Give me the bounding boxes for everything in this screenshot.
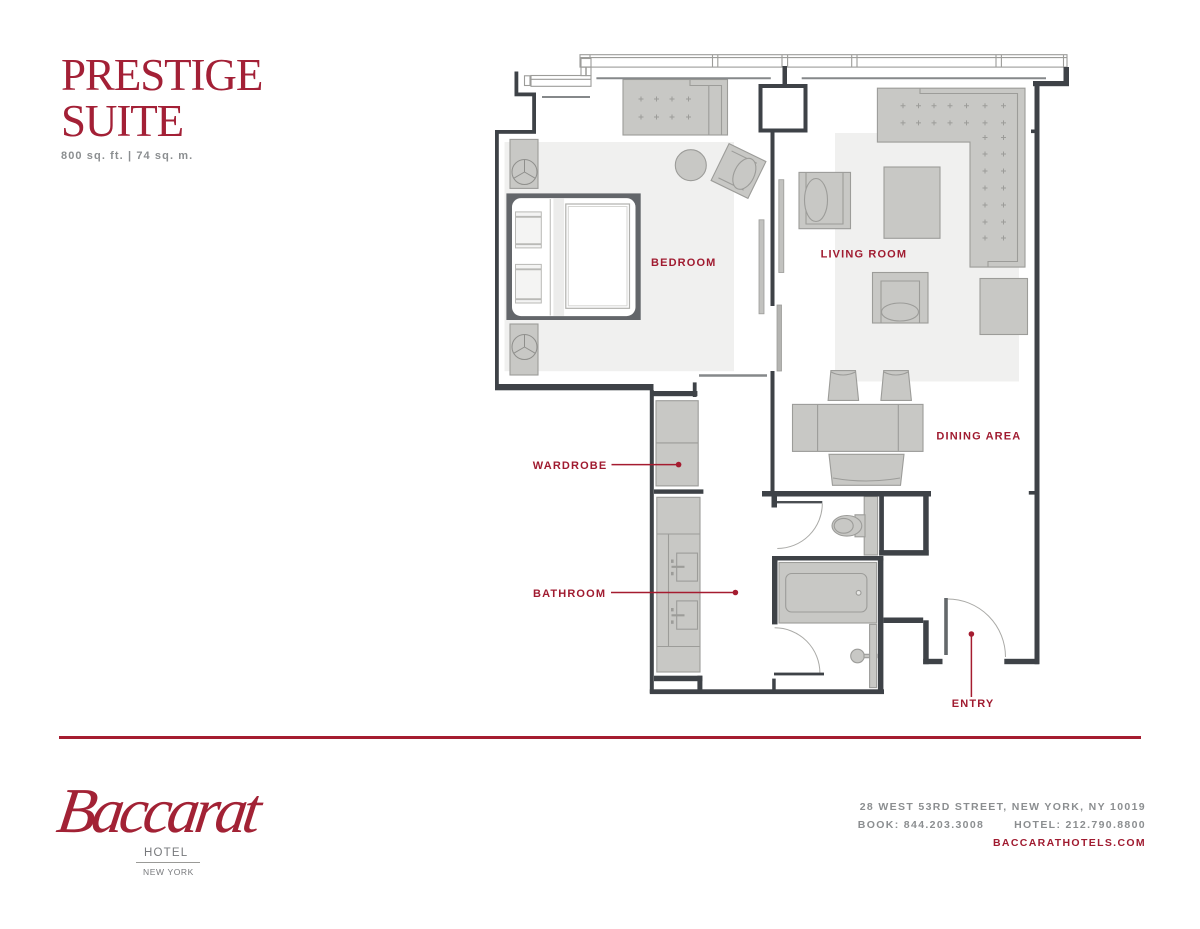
svg-text:BATHROOM: BATHROOM [533,588,606,600]
svg-text:BEDROOM: BEDROOM [651,257,717,269]
svg-text:ENTRY: ENTRY [952,698,995,710]
svg-text:DINING AREA: DINING AREA [936,430,1021,442]
svg-text:WARDROBE: WARDROBE [533,460,608,472]
svg-text:LIVING ROOM: LIVING ROOM [821,248,908,260]
